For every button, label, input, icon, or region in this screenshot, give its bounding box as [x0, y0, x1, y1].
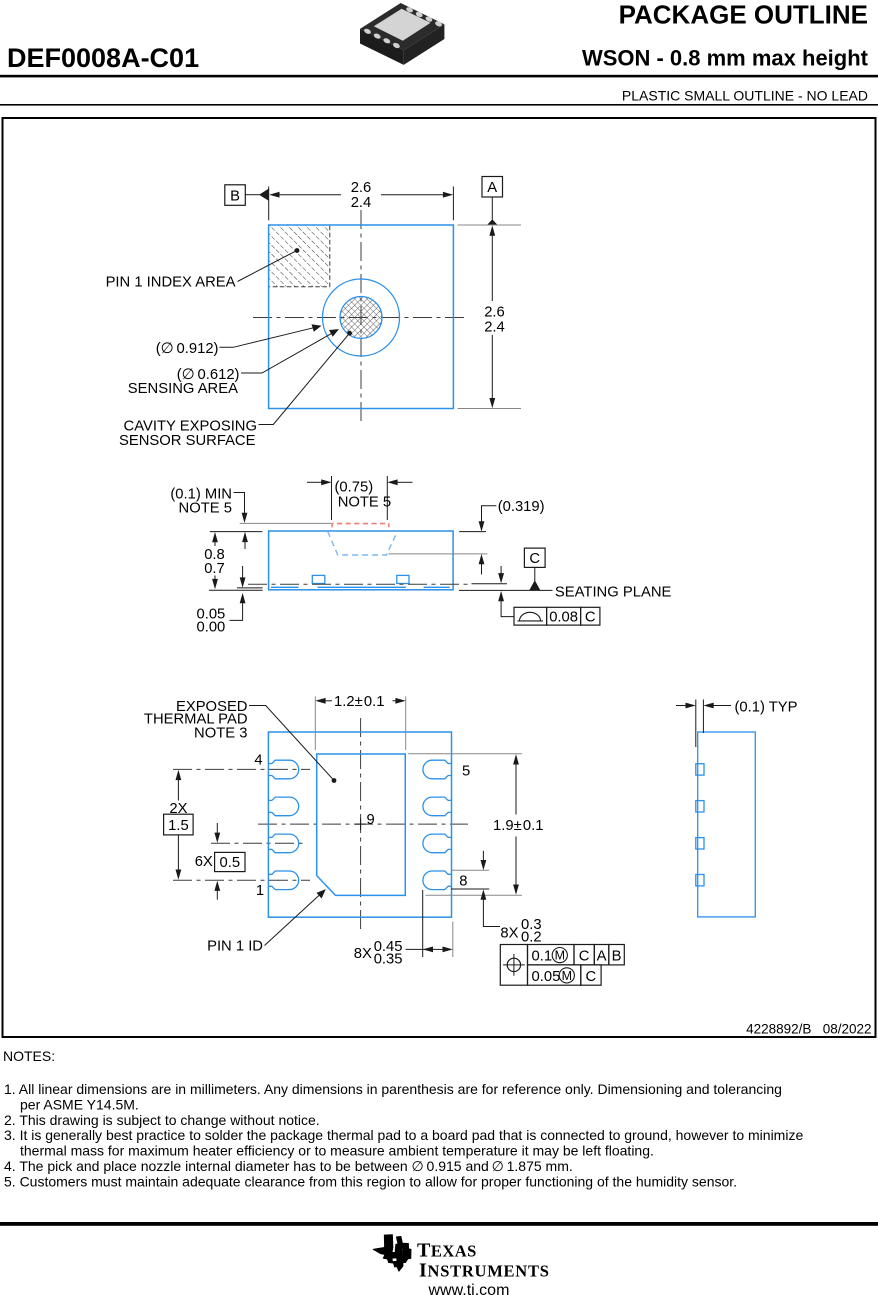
svg-text:0.7: 0.7 [204, 561, 225, 577]
svg-text:A: A [597, 948, 607, 964]
svg-text:1: 1 [256, 883, 264, 899]
svg-text:4228892/B 08/2022: 4228892/B 08/2022 [746, 1022, 871, 1037]
svg-text:3. It is generally best practi: 3. It is generally best practice to sold… [4, 1127, 803, 1143]
svg-text:(0.1) TYP: (0.1) TYP [735, 700, 798, 716]
svg-text:5: 5 [462, 764, 470, 780]
svg-text:(∅ 0.912): (∅ 0.912) [156, 341, 219, 357]
svg-text:thermal mass for maximum heate: thermal mass for maximum heater efficien… [20, 1143, 654, 1159]
svg-text:0.08: 0.08 [549, 610, 578, 626]
svg-text:NOTE 3: NOTE 3 [194, 725, 247, 741]
svg-text:A: A [487, 180, 497, 196]
svg-text:SEATING PLANE: SEATING PLANE [555, 585, 672, 601]
svg-text:1.5: 1.5 [168, 818, 189, 834]
svg-text:0.05: 0.05 [532, 969, 561, 985]
svg-text:SENSOR SURFACE: SENSOR SURFACE [119, 433, 256, 449]
svg-text:4: 4 [254, 753, 262, 769]
svg-text:C: C [586, 969, 597, 985]
svg-text:C: C [585, 610, 596, 626]
svg-text:PACKAGE OUTLINE: PACKAGE OUTLINE [619, 0, 868, 30]
svg-text:(0.75): (0.75) [335, 480, 374, 496]
svg-text:4. The pick and place nozzle i: 4. The pick and place nozzle internal di… [4, 1158, 573, 1174]
svg-text:NOTE 5: NOTE 5 [179, 501, 232, 517]
svg-text:B: B [612, 948, 622, 964]
svg-text:1.9± 0.1: 1.9± 0.1 [493, 818, 544, 834]
svg-text:TEXAS: TEXAS [417, 1240, 477, 1262]
svg-text:6X: 6X [195, 854, 213, 870]
svg-text:0.35: 0.35 [374, 952, 403, 968]
svg-text:www.ti.com: www.ti.com [428, 1282, 510, 1295]
svg-text:8: 8 [459, 874, 467, 890]
svg-text:PIN 1 ID: PIN 1 ID [207, 939, 263, 955]
svg-text:5. Customers must maintain ade: 5. Customers must maintain adequate clea… [4, 1173, 737, 1189]
svg-text:8X: 8X [354, 946, 372, 962]
svg-text:NOTE 5: NOTE 5 [338, 495, 391, 511]
svg-text:2.4: 2.4 [484, 320, 505, 336]
svg-text:9: 9 [367, 812, 375, 828]
svg-text:0.1: 0.1 [532, 948, 553, 964]
svg-text:INSTRUMENTS: INSTRUMENTS [419, 1259, 550, 1281]
svg-text:2. This drawing is subject to: 2. This drawing is subject to change wit… [4, 1112, 320, 1128]
svg-text:M: M [562, 969, 572, 983]
svg-text:8X: 8X [500, 926, 518, 942]
svg-text:PLASTIC SMALL OUTLINE - NO LEA: PLASTIC SMALL OUTLINE - NO LEAD [622, 88, 868, 104]
svg-text:DEF0008A-C01: DEF0008A-C01 [7, 43, 199, 73]
svg-text:0.2: 0.2 [521, 930, 542, 946]
svg-text:0.5: 0.5 [220, 855, 241, 871]
svg-text:PIN 1 INDEX AREA: PIN 1 INDEX AREA [106, 275, 236, 291]
svg-text:B: B [230, 188, 240, 204]
svg-text:2.6: 2.6 [484, 305, 505, 321]
svg-text:1. All linear dimensions are i: 1. All linear dimensions are in millimet… [4, 1081, 782, 1097]
svg-text:C: C [579, 948, 590, 964]
svg-text:per ASME Y14.5M.: per ASME Y14.5M. [20, 1096, 139, 1112]
svg-text:NOTES:: NOTES: [3, 1048, 55, 1064]
svg-text:WSON - 0.8 mm max height: WSON - 0.8 mm max height [582, 46, 869, 71]
svg-text:2.4: 2.4 [351, 195, 372, 211]
svg-text:2.6: 2.6 [351, 180, 372, 196]
svg-text:1.2± 0.1: 1.2± 0.1 [334, 694, 385, 710]
svg-text:0.00: 0.00 [196, 620, 225, 636]
svg-text:SENSING AREA: SENSING AREA [128, 381, 238, 397]
svg-text:(0.319): (0.319) [498, 499, 545, 515]
svg-text:C: C [529, 551, 540, 567]
svg-text:M: M [555, 949, 565, 963]
